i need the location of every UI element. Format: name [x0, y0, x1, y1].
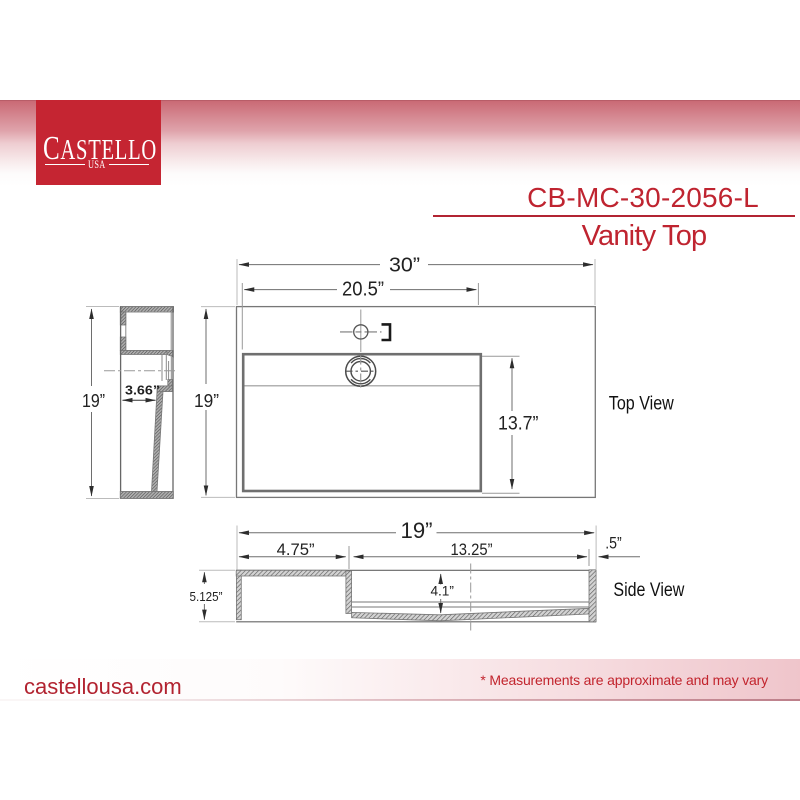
svg-text:13.7”: 13.7”: [498, 414, 539, 435]
svg-text:4.75”: 4.75”: [277, 540, 315, 559]
svg-text:19”: 19”: [82, 391, 105, 411]
svg-text:20.5”: 20.5”: [342, 279, 384, 301]
svg-text:Side View: Side View: [613, 579, 685, 601]
svg-text:19”: 19”: [401, 518, 433, 543]
svg-text:.5”: .5”: [605, 534, 622, 552]
svg-text:13.25”: 13.25”: [451, 540, 493, 559]
svg-text:5.125”: 5.125”: [190, 589, 223, 604]
svg-text:30”: 30”: [389, 254, 420, 276]
svg-text:3.66”: 3.66”: [125, 384, 160, 398]
svg-text:Top View: Top View: [609, 393, 675, 415]
svg-text:19”: 19”: [194, 391, 219, 411]
svg-text:4.1”: 4.1”: [430, 583, 454, 599]
